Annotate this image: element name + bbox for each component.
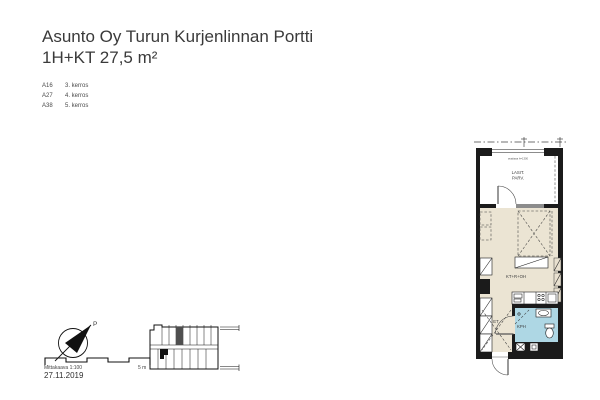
floor-plan: avattava h=1300 LASIT. PARV. [468,128,600,392]
balcony-label-line1: LASIT. [512,170,525,175]
key-plan [146,318,242,374]
scale-end-label: 5 m [138,365,146,371]
entrance-hall-label: ET [493,319,499,324]
unit-row: A274. kerros [42,91,88,101]
page-subtitle: 1H+KT 27,5 m² [42,47,313,68]
balcony-note: avattava h=1300 [508,157,528,161]
unit-code: A27 [42,91,65,101]
bathroom-label: KPH [517,324,526,329]
toilet-bowl [546,328,554,338]
unit-floor: 3. kerros [65,83,88,89]
apartment-unit-list: A163. kerros A274. kerros A385. kerros [42,81,88,111]
unit-code: A38 [42,101,65,111]
kitchen-counter [512,292,558,304]
entrance-door [492,357,508,375]
unit-divisions [158,325,211,369]
living-kitchen-label: KT+R+OH [506,274,526,279]
date-label: 27.11.2019 [44,371,83,380]
duct-shaft [480,279,490,294]
balcony-door-swing [498,186,516,204]
drawing-sheet: Asunto Oy Turun Kurjenlinnan Portti 1H+K… [0,0,600,400]
window [516,204,544,208]
adjacent-building-lines [220,325,239,371]
unit-code: A16 [42,81,65,91]
title-block: Asunto Oy Turun Kurjenlinnan Portti 1H+K… [42,26,313,68]
north-label: P [93,321,97,328]
wardrobes [480,258,492,352]
balcony-label-line2: PARV. [512,176,524,181]
unit-row: A163. kerros [42,81,88,91]
stairwell [160,349,168,355]
toilet-tank [545,324,554,328]
unit-row: A385. kerros [42,101,88,111]
highlighted-unit [176,327,183,345]
unit-floor: 4. kerros [65,93,88,99]
entrance-door-swing [492,359,508,375]
dryer [530,343,538,351]
balcony: avattava h=1300 LASIT. PARV. [476,150,563,209]
unit-floor: 5. kerros [65,103,88,109]
boundary-chain-line [474,137,567,147]
page-title: Asunto Oy Turun Kurjenlinnan Portti [42,26,313,47]
